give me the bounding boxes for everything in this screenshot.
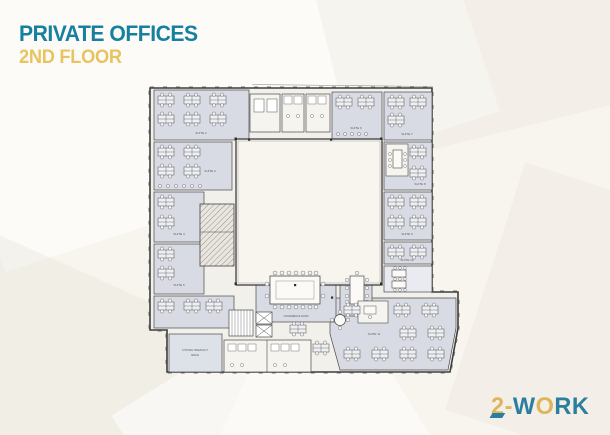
logo-numeral-2: 2 — [491, 393, 505, 421]
floor-plan: SUITE 2 SUITE 3 SUITE 4 SUITE 5 SUITE 6 … — [144, 82, 466, 394]
logo-o: O — [536, 393, 555, 420]
stairs — [229, 310, 253, 336]
page-title: PRIVATE OFFICES — [19, 22, 198, 45]
flyer-page: PRIVATE OFFICES 2ND FLOOR — [0, 0, 610, 435]
parapet-line — [252, 85, 433, 87]
suite-label: SUITE 3 — [204, 169, 216, 173]
meeting-tables-room — [384, 266, 432, 292]
suite-label: SUITE 8 — [414, 182, 426, 186]
suite-room — [154, 296, 234, 328]
elevator — [254, 99, 264, 112]
suite-label: SUITE 11 — [368, 332, 381, 336]
conference-room-label: CONFERENCE ROOM — [284, 315, 309, 318]
kitchen-label: KITCHEN / BREAKOUT — [182, 349, 208, 352]
floor-plan-svg: SUITE 2 SUITE 3 SUITE 4 SUITE 5 SUITE 6 … — [144, 82, 466, 394]
logo-rk: RK — [554, 393, 589, 420]
small-meeting-tables — [392, 267, 406, 292]
suite-label: SUITE 5 — [173, 283, 185, 287]
suite-label: SUITE 9 — [401, 232, 413, 236]
suite-label: SUITE 7 — [401, 132, 413, 136]
page-subtitle: 2ND FLOOR — [19, 48, 198, 68]
kitchen-label: SPACE — [191, 354, 199, 357]
logo-w: W — [513, 393, 536, 420]
suite-meeting-room — [386, 144, 408, 176]
logo: 2-WORK — [491, 393, 589, 421]
suite-label: SUITE 10 — [400, 258, 413, 262]
wing-office — [358, 301, 388, 323]
atrium-courtyard — [236, 139, 382, 285]
suite-label: SUITE 2 — [195, 131, 207, 135]
conference-table — [265, 271, 325, 309]
suite-label: SUITE 4 — [173, 232, 185, 236]
elevator — [267, 99, 277, 112]
kitchen-breakout-room — [169, 334, 222, 372]
top-core — [250, 94, 330, 132]
header: PRIVATE OFFICES 2ND FLOOR — [19, 22, 205, 68]
suite-label: SUITE 6 — [350, 126, 362, 130]
restrooms-bottom — [224, 340, 311, 372]
hatched-stair-core — [200, 204, 234, 266]
